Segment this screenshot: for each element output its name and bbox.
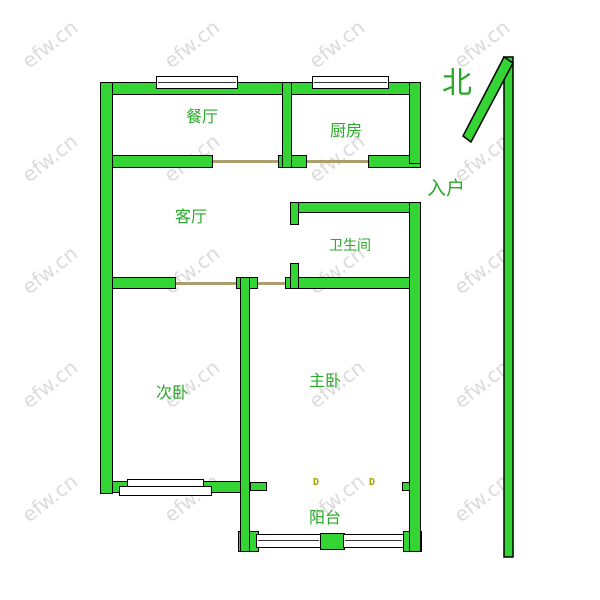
north-label: 北 <box>442 58 472 102</box>
room-label-balcony: 阳台 <box>309 504 341 528</box>
door-marker-left: D <box>313 477 319 488</box>
door-line-kitchen <box>307 160 368 163</box>
room-label-bathroom: 卫生间 <box>329 235 371 255</box>
watermark-text: efw.cn <box>304 15 369 73</box>
floor-plan: efw.cnefw.cnefw.cnefw.cnefw.cnefw.cnefw.… <box>0 0 600 600</box>
watermark-text: efw.cn <box>159 15 224 73</box>
watermark-text: efw.cn <box>159 241 224 299</box>
room-label-dining: 餐厅 <box>186 103 218 127</box>
watermark-text: efw.cn <box>17 469 82 527</box>
wall-living-bottom-right <box>285 277 421 289</box>
room-label-second-bedroom: 次卧 <box>156 379 188 403</box>
watermark-text: efw.cn <box>17 355 82 413</box>
window-dining-top <box>156 76 238 89</box>
watermark-text: efw.cn <box>17 241 82 299</box>
north-arrow-icon <box>450 52 525 564</box>
window-kitchen-top <box>312 76 389 89</box>
wall-bathroom-top <box>290 202 421 213</box>
wall-right-lower <box>409 202 421 552</box>
wall-dining-kitchen-divider <box>282 82 292 168</box>
watermark-text: efw.cn <box>17 129 82 187</box>
wall-dining-bottom-left <box>100 155 213 168</box>
entrance-label: 入户 <box>427 174 465 201</box>
wall-left <box>100 82 113 494</box>
watermark-text: efw.cn <box>159 469 224 527</box>
watermark-text: efw.cn <box>17 15 82 73</box>
door-marker-right: D <box>369 477 375 488</box>
wall-bathroom-left-bottom <box>290 263 299 289</box>
window-bedroom2-lower <box>119 486 212 496</box>
wall-bedroom-divider <box>240 277 250 552</box>
wall-right-upper <box>409 82 421 164</box>
room-label-kitchen: 厨房 <box>330 117 362 141</box>
door-line-master <box>258 282 285 285</box>
wall-balcony-stub-left <box>250 482 267 491</box>
window-balcony-right <box>343 534 404 548</box>
door-line-bedroom2 <box>176 282 236 285</box>
wall-balcony-bottom-mid <box>320 533 345 550</box>
room-label-master-bedroom: 主卧 <box>309 367 341 391</box>
room-label-living: 客厅 <box>175 203 207 227</box>
window-balcony-left <box>256 534 321 548</box>
door-line-dining <box>213 160 278 163</box>
wall-bathroom-left-top <box>290 202 299 225</box>
